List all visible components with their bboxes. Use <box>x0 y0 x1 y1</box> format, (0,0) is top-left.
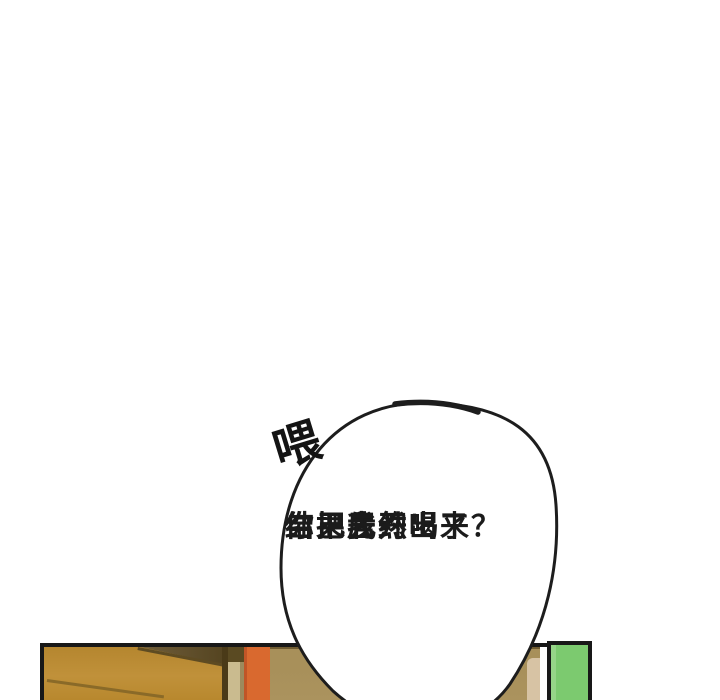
speech-line-3: 自己先开喝了？ <box>285 508 502 547</box>
comic-page: 喂 你把我约出来 结果居然 自己先开喝了？ <box>0 0 720 700</box>
speech-bubble <box>0 0 720 700</box>
